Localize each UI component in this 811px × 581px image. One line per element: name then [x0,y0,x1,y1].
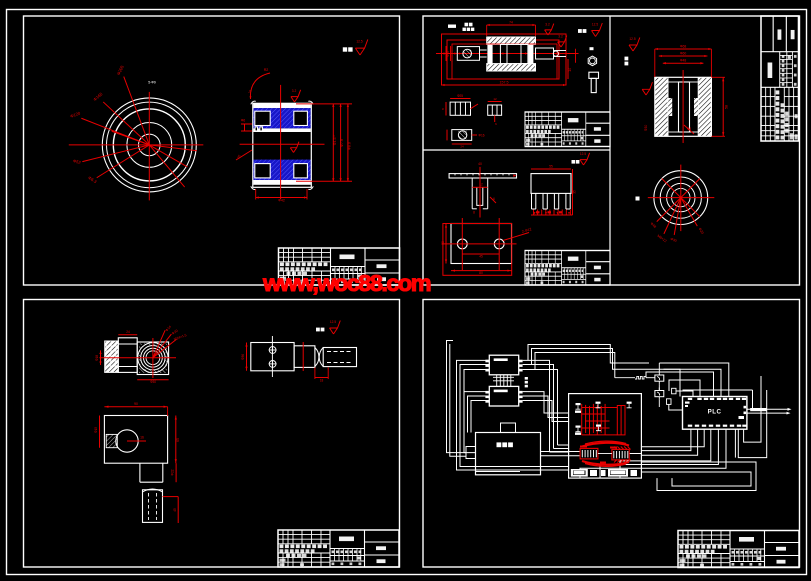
svg-text:55: 55 [549,165,553,169]
svg-text:3.2: 3.2 [558,35,563,39]
svg-text:Φ25: Φ25 [457,94,463,98]
svg-text:40: 40 [478,162,482,166]
svg-text:58: 58 [725,105,729,109]
svg-text:12.5: 12.5 [629,37,635,41]
svg-text:12.5: 12.5 [330,320,336,324]
svg-text:65: 65 [176,438,180,442]
svg-text:Φ48: Φ48 [680,59,687,63]
svg-text:80: 80 [479,271,483,275]
svg-text:14: 14 [568,68,572,72]
svg-text:5-Φ9: 5-Φ9 [148,81,156,85]
svg-text:3.2: 3.2 [545,23,550,27]
svg-text:24: 24 [460,145,464,149]
svg-text:90: 90 [134,402,138,406]
svg-text:Φ15: Φ15 [94,427,98,433]
svg-text:12.5: 12.5 [356,39,362,43]
svg-text:12.5: 12.5 [592,23,598,27]
svg-text:Φ8.0: Φ8.0 [347,142,351,150]
svg-text:Φ16: Φ16 [478,134,484,138]
svg-text:45: 45 [173,508,177,512]
svg-text:12: 12 [479,183,483,187]
svg-text:Φ68: Φ68 [680,45,687,49]
svg-text:24: 24 [126,330,130,334]
svg-text:Φ36: Φ36 [241,354,245,360]
svg-text:74: 74 [509,21,513,25]
svg-text:45: 45 [479,255,483,259]
svg-text:Φ22: Φ22 [171,469,175,475]
svg-text:Φ60: Φ60 [680,52,687,56]
svg-text:Φ4.5°°: Φ4.5°° [333,134,337,145]
svg-text:Φ42: Φ42 [278,199,285,203]
svg-text:8: 8 [473,211,475,215]
svg-text:Φ8: Φ8 [687,127,692,131]
svg-text:18: 18 [320,379,324,383]
svg-text:Φ30: Φ30 [644,125,648,132]
svg-text:PLC: PLC [708,409,722,416]
svg-text:Φ18: Φ18 [95,355,99,361]
svg-text:3.2: 3.2 [292,89,297,93]
svg-text:35: 35 [573,190,577,194]
svg-text:16: 16 [140,436,144,440]
svg-text:12: 12 [493,97,497,101]
svg-text:www,woc88.com: www,woc88.com [262,270,431,296]
svg-text:12.5: 12.5 [580,152,586,156]
svg-text:157.5: 157.5 [500,81,509,85]
svg-text:50: 50 [441,241,445,245]
svg-text:Φ7.9: Φ7.9 [340,139,344,147]
svg-text:Φ30: Φ30 [150,380,156,384]
svg-text:R2: R2 [264,68,269,72]
svg-text:Φ6: Φ6 [241,119,246,123]
svg-text:Φ30: Φ30 [446,51,450,57]
